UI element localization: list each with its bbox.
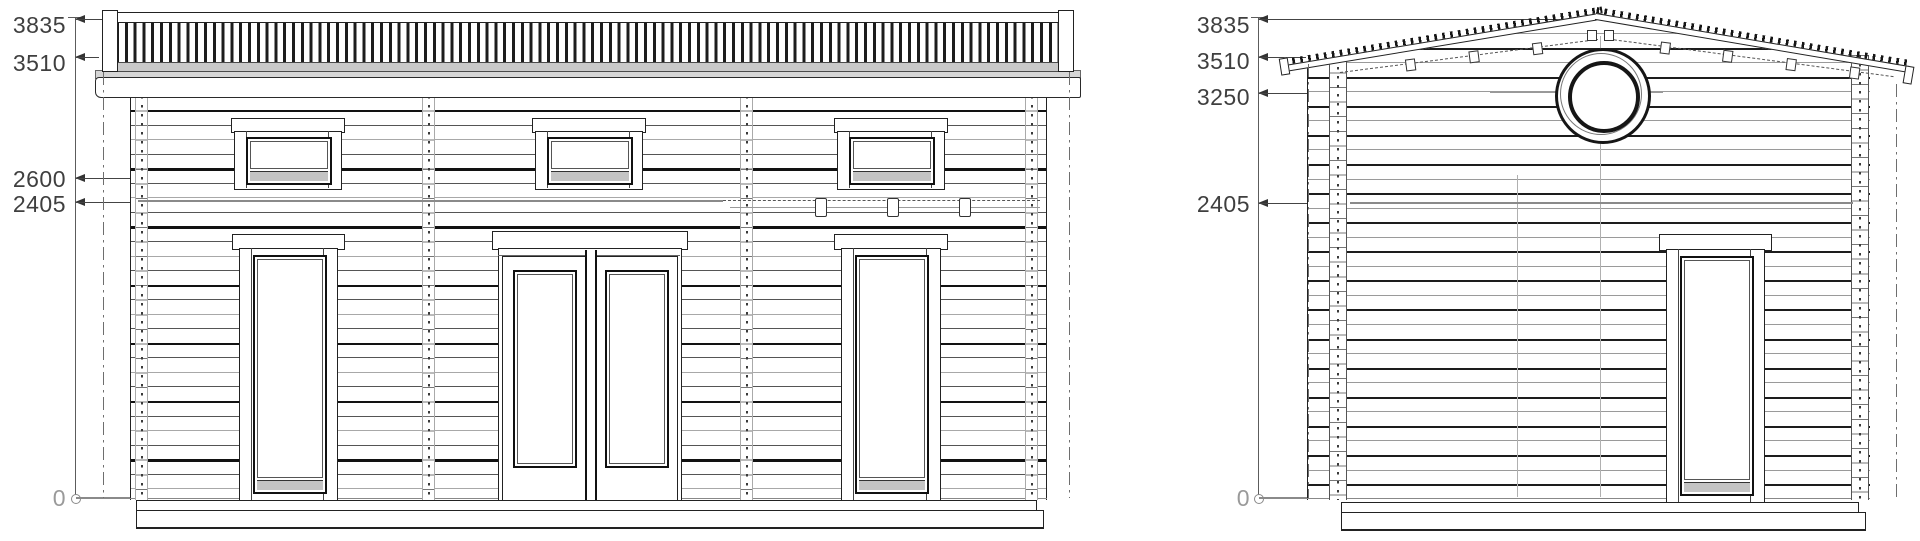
front-floor-hidden-line [723, 200, 1040, 201]
siding-line [1307, 411, 1870, 412]
siding-line [1307, 251, 1870, 253]
siding-line [1307, 193, 1870, 195]
side-dim-2405: 2405 [1190, 192, 1250, 216]
side-log-seam-line [1517, 175, 1518, 497]
small-window-frame [849, 137, 935, 185]
front-leader-0 [76, 497, 138, 499]
front-dim-3835: 3835 [6, 13, 66, 37]
tall-door-glass [859, 259, 925, 478]
balustrade-top-rail [102, 12, 1072, 23]
front-foundation-lower [136, 510, 1044, 529]
front-dim-2405: 2405 [6, 192, 66, 216]
front-joist-block [959, 198, 971, 217]
front-log-joint-column [740, 96, 753, 500]
elevation-drawing-sheet: 3835 3510 2600 2405 0 [0, 0, 1920, 541]
side-dim-3835: 3835 [1190, 13, 1250, 37]
balustrade-post-right [1058, 10, 1074, 72]
front-tick-0 [71, 494, 81, 504]
small-window-glass [551, 141, 629, 169]
front-wall-left-edge [130, 96, 131, 500]
side-dim-0: 0 [1190, 486, 1250, 510]
siding-line [1307, 397, 1870, 399]
siding-line [1307, 455, 1870, 457]
small-window-sill [853, 171, 931, 181]
side-corner-post-left [1329, 58, 1347, 500]
front-leader-2600 [76, 178, 138, 179]
balustrade-balusters [116, 21, 1059, 64]
tall-door-frame [855, 255, 929, 494]
ridge-clip [1604, 30, 1614, 41]
small-window-sill [551, 171, 629, 181]
front-log-joint-column [135, 96, 148, 500]
side-door-glass [1684, 260, 1750, 480]
side-projection-line-right [1896, 84, 1897, 498]
siding-line [130, 226, 1047, 228]
double-door-glass [609, 274, 665, 464]
purlin-clip [1849, 66, 1860, 79]
side-tick-0 [1254, 494, 1264, 504]
siding-line [1307, 426, 1870, 428]
siding-line [1307, 470, 1870, 471]
double-door-panel-right [605, 270, 669, 468]
siding-line [1307, 149, 1870, 150]
purlin-clip [1468, 50, 1479, 63]
purlin-clip [1722, 50, 1733, 63]
front-joist-block [815, 198, 827, 217]
front-log-joint-column [422, 96, 435, 500]
front-floor-edge-line [730, 207, 1040, 208]
siding-line [1307, 179, 1870, 180]
small-window-glass [853, 141, 931, 169]
front-leader-3835 [76, 19, 103, 20]
tall-window-sill [257, 480, 323, 490]
front-leader-3510 [76, 57, 99, 58]
double-door-glass [517, 274, 573, 464]
siding-line [1307, 280, 1870, 282]
side-floor-level-line [1350, 202, 1853, 204]
front-dim-3510: 3510 [6, 51, 66, 75]
purlin-clip [1785, 58, 1796, 71]
tall-window-trim [251, 248, 252, 500]
front-wall-right-edge [1046, 96, 1047, 500]
front-floor-level-line [138, 200, 723, 202]
siding-line [1307, 164, 1870, 166]
small-window-sill [250, 171, 328, 181]
siding-line [1307, 266, 1870, 267]
siding-line [1307, 208, 1870, 209]
siding-line [1307, 368, 1870, 370]
siding-line [1307, 353, 1870, 354]
tall-door-trim [853, 248, 854, 500]
siding-line [1307, 237, 1870, 238]
tall-window-frame [253, 255, 327, 494]
side-dim-3510: 3510 [1190, 49, 1250, 73]
front-fascia [95, 77, 1081, 98]
front-leader-2405 [76, 202, 138, 203]
roof-fascia-cap-right [1903, 65, 1915, 84]
side-projection-line-left [1308, 64, 1309, 498]
siding-line [1307, 324, 1870, 325]
siding-line [1307, 222, 1870, 224]
double-door-mullion [585, 250, 597, 500]
tall-window-glass [257, 259, 323, 478]
side-dim-3250: 3250 [1190, 85, 1250, 109]
siding-line [1307, 440, 1870, 441]
purlin-clip [1660, 41, 1671, 54]
front-dim-2600: 2600 [6, 167, 66, 191]
ridge-clip [1587, 30, 1597, 41]
front-dim-0: 0 [6, 486, 66, 510]
side-door-frame [1680, 256, 1754, 496]
small-window-frame [547, 137, 633, 185]
round-window-inner [1568, 61, 1640, 133]
front-projection-line-right [1069, 72, 1070, 498]
small-window-frame [246, 137, 332, 185]
balustrade-post-left [102, 10, 118, 72]
front-projection-line-left [103, 72, 104, 498]
purlin-clip [1532, 42, 1543, 55]
purlin-clip [1405, 58, 1416, 71]
front-dimension-line [75, 17, 76, 500]
side-foundation-lower [1341, 512, 1866, 531]
small-window-glass [250, 141, 328, 169]
siding-line [130, 197, 1047, 198]
siding-line [1307, 339, 1870, 341]
siding-line [1307, 382, 1870, 383]
balcony-deck-edge [104, 62, 1071, 72]
front-log-joint-column [1025, 96, 1038, 500]
double-door-panel-left [513, 270, 577, 468]
tall-door-sill [859, 480, 925, 490]
side-door-trim [1678, 249, 1679, 502]
siding-line [1307, 295, 1870, 296]
siding-line [1307, 484, 1870, 486]
siding-line [130, 110, 1047, 112]
siding-line [1307, 309, 1870, 311]
side-door-sill [1684, 482, 1750, 492]
side-corner-post-right [1851, 55, 1869, 500]
side-wall-bottom-edge [1307, 498, 1870, 499]
siding-line [130, 212, 1047, 213]
front-joist-block [887, 198, 899, 217]
